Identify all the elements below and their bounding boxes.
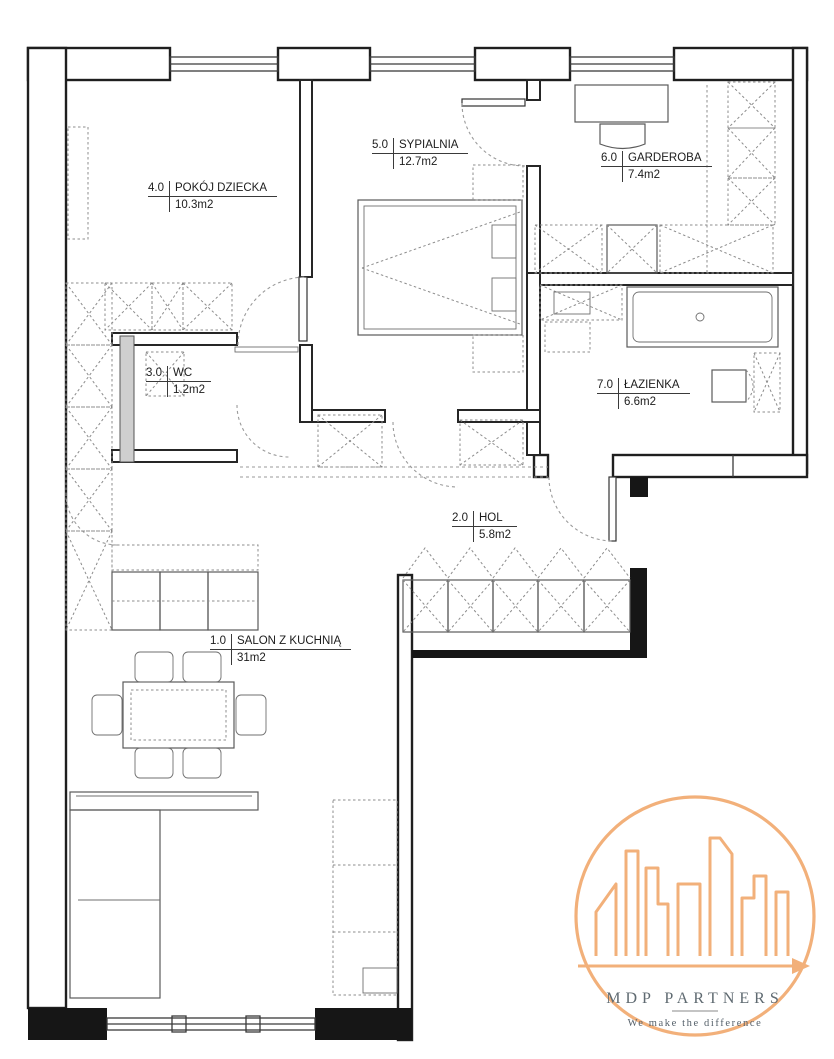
room-label-sypialnia: 5.0 SYPIALNIA 12.7m2 — [372, 138, 468, 169]
nightstands — [473, 165, 523, 372]
logo-skyline-icon — [596, 838, 788, 956]
room-number: 3.0 — [146, 366, 167, 382]
dining-table — [123, 682, 234, 748]
washbasin — [540, 285, 622, 352]
room-label-pokoj-dziecka: 4.0 POKÓJ DZIECKA 10.3m2 — [148, 181, 277, 212]
room-number: 6.0 — [601, 151, 622, 167]
room-name: GARDEROBA — [622, 151, 712, 167]
garderoba-wardrobe-column — [707, 82, 775, 273]
room-label-wc: 3.0 WC 1.2m2 — [146, 366, 211, 397]
logo-title: MDP PARTNERS — [606, 990, 783, 1007]
room-name: WC — [167, 366, 211, 382]
toilet — [712, 353, 780, 412]
room-area: 5.8m2 — [473, 527, 517, 542]
room-label-lazienka: 7.0 ŁAZIENKA 6.6m2 — [597, 378, 690, 409]
door-pokoj-dziecka — [238, 277, 307, 345]
room-label-garderoba: 6.0 GARDEROBA 7.4m2 — [601, 151, 712, 182]
sofa — [70, 792, 258, 998]
kitchen-counters — [112, 545, 258, 630]
bed — [358, 200, 522, 335]
room-number: 2.0 — [452, 511, 473, 527]
mdp-partners-logo: MDP PARTNERS We make the difference — [576, 797, 814, 1035]
room-name: POKÓJ DZIECKA — [169, 181, 277, 197]
bathtub — [627, 287, 778, 347]
window-garderoba — [570, 57, 674, 71]
room-number: 1.0 — [210, 634, 231, 650]
exterior-walls — [28, 48, 807, 1040]
room-name: SYPIALNIA — [393, 138, 468, 154]
window-pokoj — [170, 57, 278, 71]
room-area: 6.6m2 — [618, 394, 690, 409]
room-name: HOL — [473, 511, 517, 527]
door-entrance — [549, 477, 616, 541]
kitchen-tall-units — [333, 800, 397, 995]
door-sypialnia-garderoba — [462, 99, 525, 166]
room-label-salon: 1.0 SALON Z KUCHNIĄ 31m2 — [210, 634, 351, 665]
room-area: 12.7m2 — [393, 154, 468, 169]
pokoj-radiator — [68, 127, 88, 239]
room-area: 7.4m2 — [622, 167, 712, 182]
room-label-hol: 2.0 HOL 5.8m2 — [452, 511, 517, 542]
room-number: 5.0 — [372, 138, 393, 154]
floor-plan-page: MDP PARTNERS We make the difference 4.0 … — [0, 0, 834, 1059]
garderoba-wardrobe-row — [535, 225, 773, 273]
door-kitchen-corner — [66, 493, 118, 545]
left-wardrobe-column — [66, 283, 112, 630]
room-name: SALON Z KUCHNIĄ — [231, 634, 351, 650]
room-area: 31m2 — [231, 650, 351, 665]
pokoj-wardrobe-row — [105, 283, 232, 330]
room-number: 7.0 — [597, 378, 618, 394]
window-sypialnia — [370, 57, 475, 71]
room-area: 10.3m2 — [169, 197, 277, 212]
room-area: 1.2m2 — [167, 382, 211, 397]
room-number: 4.0 — [148, 181, 169, 197]
wc-walls — [112, 333, 298, 462]
logo-tagline: We make the difference — [628, 1018, 763, 1029]
door-wc — [237, 405, 289, 457]
room-name: ŁAZIENKA — [618, 378, 690, 394]
hol-wardrobe-row — [403, 548, 630, 632]
dining-chairs — [92, 652, 266, 778]
desk — [575, 85, 668, 149]
window-salon — [107, 1016, 315, 1032]
